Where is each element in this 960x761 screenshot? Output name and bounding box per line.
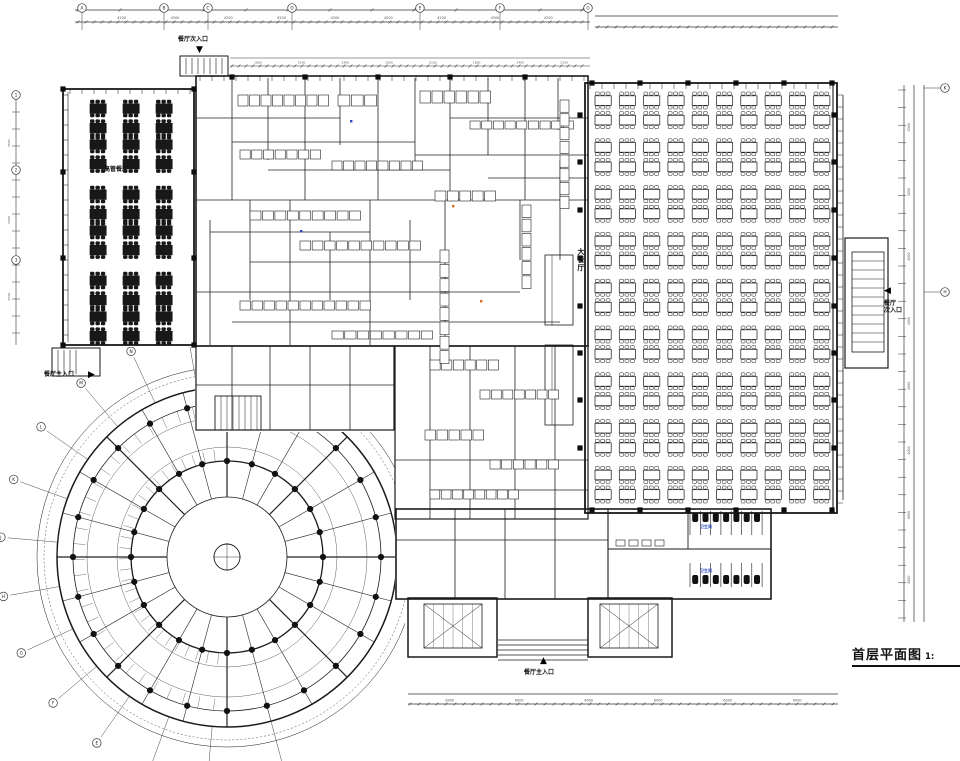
svg-text:6000: 6000 (445, 699, 454, 703)
svg-text:6000: 6000 (654, 699, 663, 703)
svg-text:G: G (20, 651, 23, 657)
svg-text:4000: 4000 (907, 446, 911, 454)
floor-plan-svg: ABCDEFG420045004200810042004500420045004… (0, 0, 960, 761)
svg-text:4200: 4200 (117, 16, 126, 20)
svg-text:1800: 1800 (473, 60, 481, 64)
svg-text:2100: 2100 (429, 60, 437, 64)
svg-text:4200: 4200 (331, 16, 340, 20)
svg-text:4200: 4200 (224, 16, 233, 20)
svg-text:N: N (129, 349, 132, 355)
svg-text:4500: 4500 (384, 16, 393, 20)
svg-text:8100: 8100 (277, 16, 286, 20)
svg-text:4000: 4000 (907, 317, 911, 325)
svg-text:1500: 1500 (385, 60, 393, 64)
svg-text:3: 3 (15, 258, 18, 264)
svg-text:E: E (419, 6, 422, 12)
svg-text:H: H (943, 290, 946, 296)
svg-text:4000: 4000 (907, 576, 911, 584)
svg-text:4200: 4200 (544, 16, 553, 20)
svg-text:1: 1 (15, 93, 18, 99)
svg-text:B: B (163, 6, 166, 12)
svg-text:C: C (206, 6, 209, 12)
svg-text:K: K (12, 477, 15, 483)
svg-text:6000: 6000 (515, 699, 524, 703)
svg-text:4200: 4200 (437, 16, 446, 20)
svg-text:4500: 4500 (171, 16, 180, 20)
svg-text:J: J (0, 535, 2, 541)
svg-text:6000: 6000 (584, 699, 593, 703)
svg-text:2100: 2100 (560, 60, 568, 64)
svg-text:6000: 6000 (723, 699, 732, 703)
svg-text:4500: 4500 (491, 16, 500, 20)
svg-text:2400: 2400 (517, 60, 525, 64)
svg-text:4200: 4200 (7, 216, 11, 224)
svg-text:4000: 4000 (907, 188, 911, 196)
svg-text:E: E (95, 741, 98, 747)
svg-text:6000: 6000 (793, 699, 802, 703)
svg-text:4500: 4500 (7, 139, 11, 147)
svg-text:4000: 4000 (907, 382, 911, 390)
svg-text:8000: 8000 (907, 511, 911, 519)
svg-text:H: H (2, 594, 5, 600)
svg-text:M: M (79, 381, 83, 387)
svg-text:2400: 2400 (342, 60, 350, 64)
svg-text:G: G (586, 6, 589, 12)
svg-text:A: A (81, 6, 84, 12)
svg-text:2100: 2100 (298, 60, 306, 64)
floor-plan-canvas: ABCDEFG420045004200810042004500420045004… (0, 0, 960, 761)
svg-text:4000: 4000 (907, 123, 911, 131)
svg-text:4500: 4500 (7, 293, 11, 301)
svg-text:K: K (944, 86, 947, 92)
svg-text:4000: 4000 (907, 253, 911, 261)
svg-text:1800: 1800 (254, 60, 262, 64)
svg-text:2: 2 (15, 168, 18, 174)
